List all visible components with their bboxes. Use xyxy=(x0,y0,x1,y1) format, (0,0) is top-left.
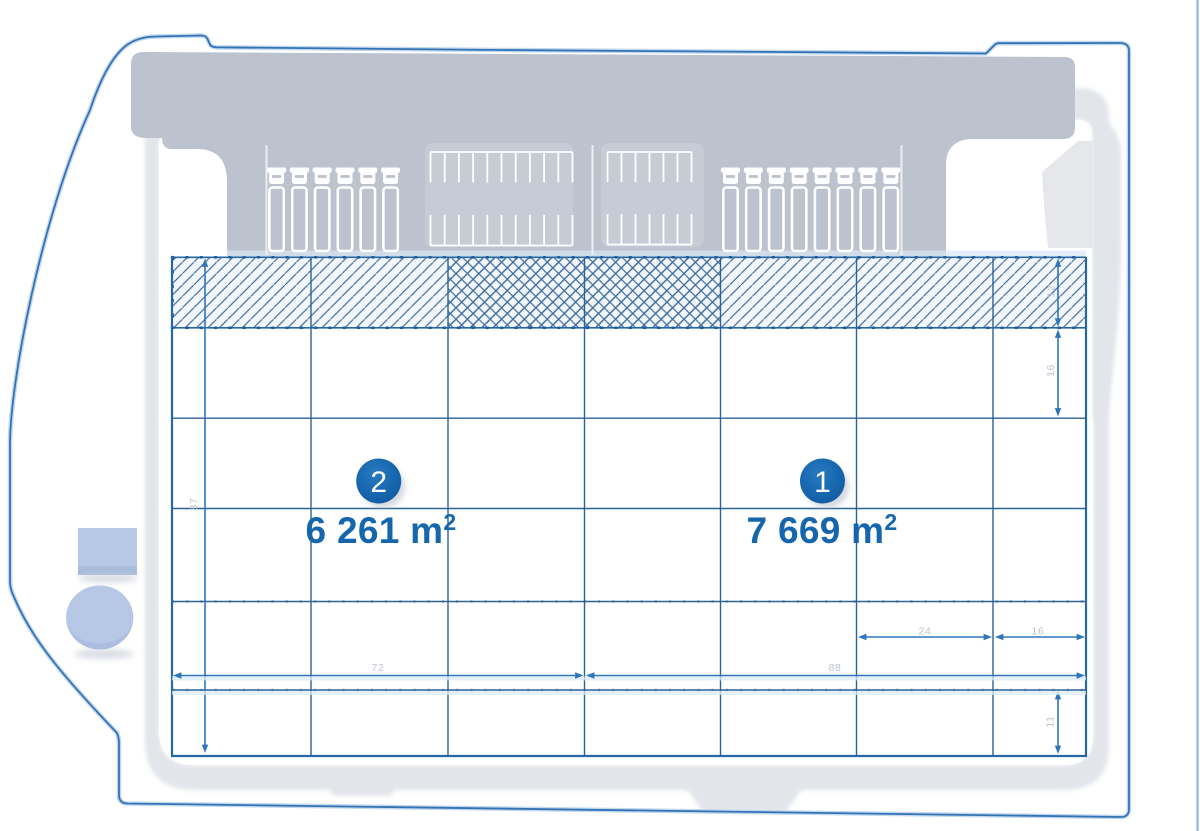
svg-text:88: 88 xyxy=(829,662,842,674)
svg-text:2: 2 xyxy=(370,466,387,499)
svg-text:72: 72 xyxy=(372,662,385,674)
svg-text:16: 16 xyxy=(1045,364,1057,377)
svg-text:11: 11 xyxy=(1045,715,1057,727)
svg-text:1: 1 xyxy=(814,466,831,499)
svg-text:6 261 m2: 6 261 m2 xyxy=(306,509,457,551)
svg-text:12: 12 xyxy=(1046,285,1058,298)
svg-text:24: 24 xyxy=(919,626,932,638)
svg-text:7 669 m2: 7 669 m2 xyxy=(747,509,898,551)
svg-text:87: 87 xyxy=(188,498,200,511)
svg-text:16: 16 xyxy=(1032,626,1045,638)
